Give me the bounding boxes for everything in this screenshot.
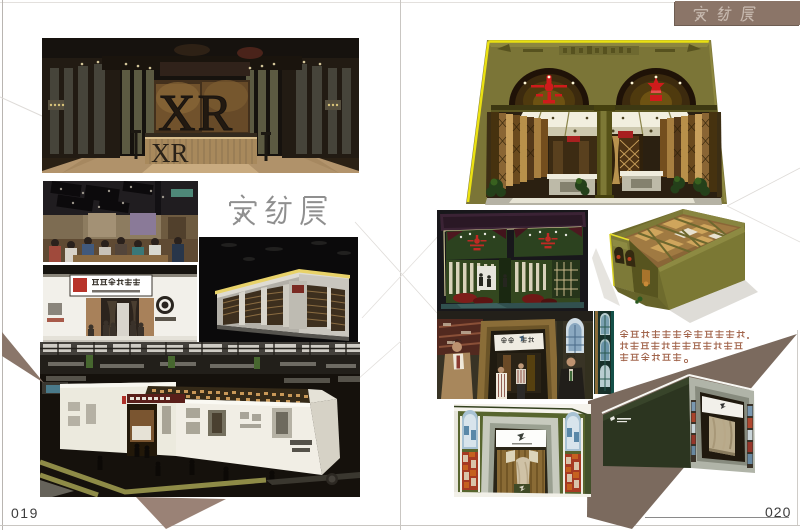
svg-text:XR: XR xyxy=(151,138,189,168)
